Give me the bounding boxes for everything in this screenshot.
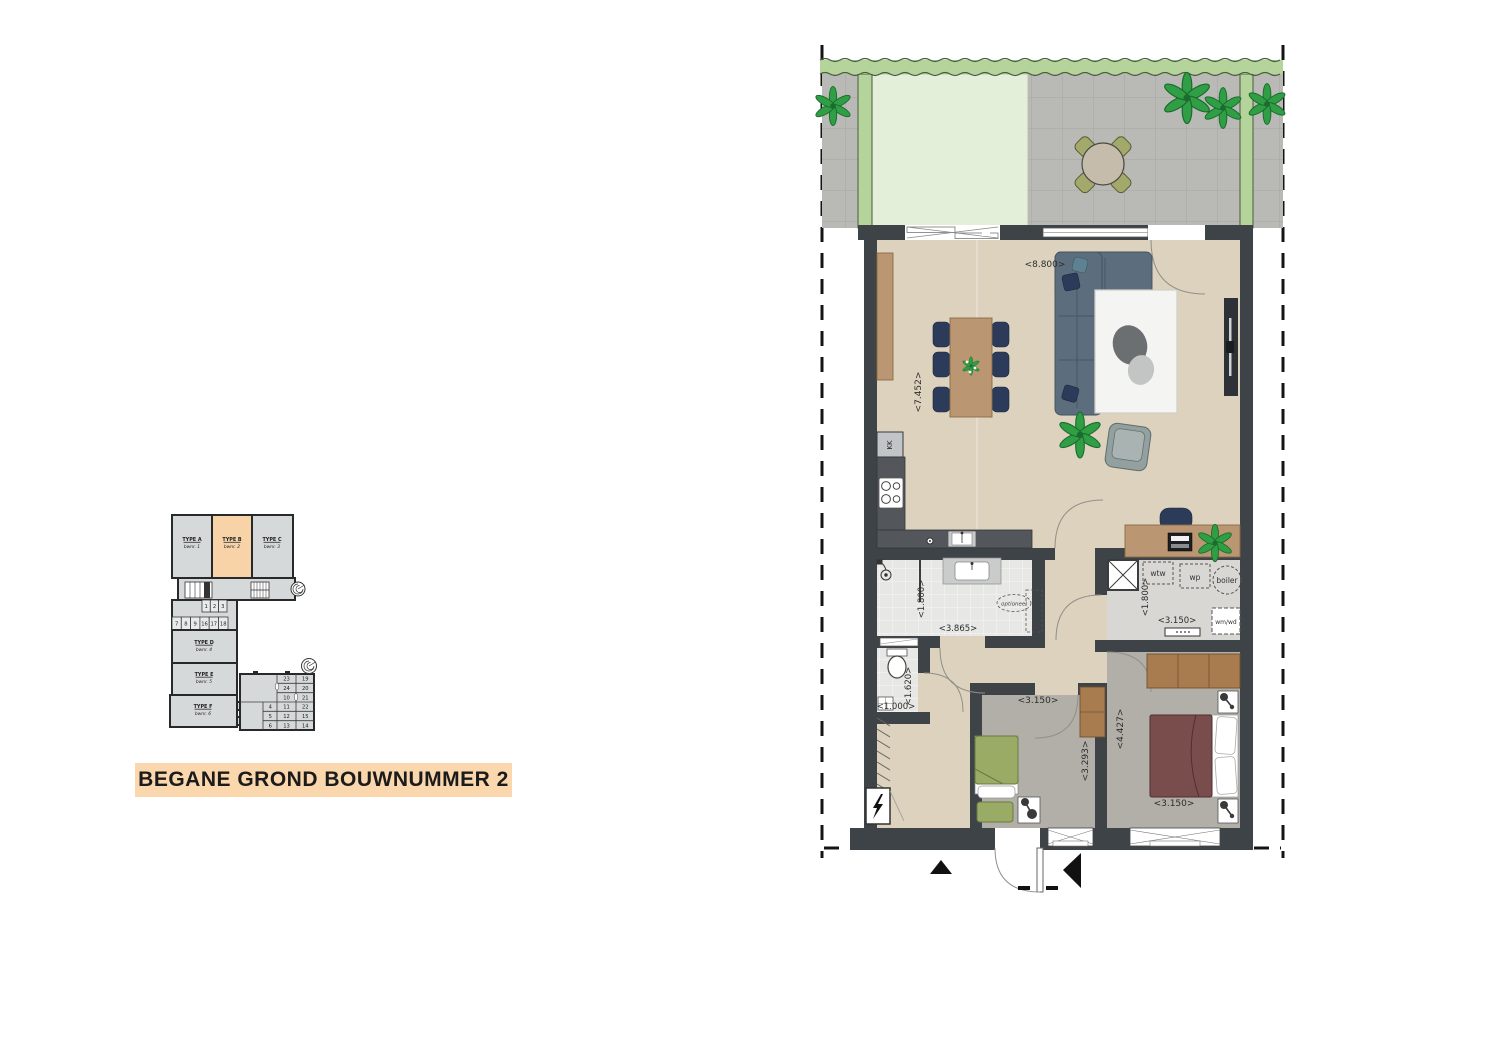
annex-number: 15 [302, 714, 309, 720]
annex-number: 12 [283, 714, 290, 720]
storage-cells-row2: 7 8 9 16 17 18 [172, 617, 228, 630]
wtw-label: wtw [1150, 569, 1165, 578]
vent-grille-icon [1165, 628, 1200, 636]
grass-area [872, 74, 1028, 228]
hedge-band-top [820, 60, 1283, 74]
nightstand [1218, 799, 1238, 823]
hedge-strip-left [858, 74, 872, 228]
annex-number: 20 [302, 686, 309, 692]
wall-tick [253, 671, 258, 674]
storage-number: 18 [220, 622, 227, 628]
dim-bedroom2-width: <3.150> [1154, 799, 1195, 809]
single-bed [975, 736, 1018, 822]
annex-number: 23 [283, 677, 290, 683]
door-handle [275, 683, 279, 690]
dim-bedroom2-depth: <4.427> [1116, 709, 1126, 750]
overview-key-plan: TYPE A bwnr. 1 TYPE B bwnr. 2 TYPE C bwn… [165, 505, 325, 740]
tv-icon [1224, 298, 1238, 396]
storage-number: 8 [184, 622, 187, 628]
washbasin-icon [943, 558, 1001, 584]
wp-label: wp [1190, 573, 1201, 582]
dim-toilet-width: <1.000> [877, 702, 916, 712]
annex-number: 5 [269, 714, 272, 720]
nightstand [1018, 797, 1040, 823]
nightstand [1218, 691, 1238, 713]
front-door-leaf [1037, 848, 1043, 892]
dim-bathroom-depth: <1.800> [917, 580, 927, 619]
bedroom2-window [1130, 828, 1220, 846]
dim-bathroom-width: <3.865> [939, 624, 978, 634]
terrace-door-opening [1148, 225, 1205, 240]
annex-number: 6 [269, 723, 272, 729]
storage-number: 16 [201, 622, 208, 628]
wall-tick [285, 671, 290, 674]
threshold-dash [1018, 886, 1030, 890]
storage-number: 2 [213, 604, 216, 610]
front-door-arc [995, 848, 1040, 892]
unit-bwnr-label: bwnr. 6 [195, 711, 211, 717]
annex-number: 14 [302, 723, 309, 729]
annex-number: 21 [302, 695, 309, 701]
storage-number: 9 [194, 622, 197, 628]
fridge-label: KK [886, 440, 894, 450]
front-door-opening [995, 828, 1040, 850]
floor-plan-page: KK [0, 0, 1485, 1050]
storage-number: 3 [221, 604, 224, 610]
storage-number: 1 [205, 604, 208, 610]
dim-living-depth: <7.452> [914, 372, 924, 413]
double-bed [1150, 715, 1238, 797]
unit-bwnr-label: bwnr. 4 [196, 647, 212, 653]
annex-number: 19 [302, 677, 309, 683]
storage-cells-row1: 1 2 3 [202, 600, 227, 612]
entrance-arrow-icon [1063, 853, 1081, 888]
wardrobe [1147, 654, 1240, 688]
wm-wd-label: wm/wd [1215, 619, 1237, 626]
bench-cushion [977, 802, 1013, 822]
pillow [1215, 716, 1238, 754]
dim-tech-width: <3.150> [1158, 616, 1197, 626]
terrace-tiles-left [822, 74, 858, 228]
shaft-icon [1108, 560, 1138, 590]
terrace-table [1082, 143, 1124, 185]
toilet-window [880, 638, 918, 646]
dim-tech-depth: <1.800> [1141, 578, 1151, 617]
unit-bwnr-label: bwnr. 2 [224, 544, 240, 550]
stairs-icon [251, 582, 269, 598]
dim-bedroom1-width: <3.150> [1018, 696, 1059, 706]
unit-bwnr-label: bwnr. 5 [196, 679, 212, 685]
sofa-pillow [1062, 273, 1081, 292]
pillow [1215, 756, 1238, 794]
cooktop-icon [879, 478, 903, 508]
annex-number: 11 [283, 705, 290, 711]
unit-bwnr-label: bwnr. 3 [264, 544, 280, 550]
main-floor-plan: KK [815, 36, 1290, 911]
spiral-stair-icon [291, 582, 305, 596]
kitchen-sink-icon [948, 531, 976, 547]
plan-title: BEGANE GROND BOUWNUMMER 2 [135, 763, 512, 797]
terrace [815, 59, 1287, 229]
bedroom1-window [1048, 828, 1093, 846]
storage-number: 17 [210, 622, 217, 628]
optional-label: optioneel [1001, 602, 1027, 608]
column-marker [982, 230, 990, 236]
tall-cabinet [877, 253, 893, 380]
threshold-dash [1046, 886, 1058, 890]
annex-number: 13 [283, 723, 290, 729]
unit-bwnr-label: bwnr. 1 [184, 544, 200, 550]
dim-living-width: <8.800> [1025, 260, 1066, 270]
overview-unit-e [172, 663, 237, 695]
annex-number: 24 [283, 686, 290, 692]
boiler-label: boiler [1216, 576, 1238, 585]
stairs-icon [185, 582, 212, 598]
spiral-stair-icon [302, 659, 317, 674]
dim-bedroom1-depth: <3.293> [1081, 741, 1091, 782]
rug [1095, 290, 1177, 413]
overview-unit-d [172, 630, 237, 663]
overview-annex: 4 5 6 23 24 10 11 12 13 19 20 21 22 15 1… [240, 671, 314, 730]
door-handle [294, 694, 298, 701]
dim-toilet-depth: <1.620> [904, 667, 914, 706]
storage-number: 7 [175, 622, 178, 628]
armchair [1104, 422, 1152, 471]
entrance-marker-icon [930, 860, 952, 874]
pillow [978, 786, 1015, 798]
overview-unit-f [170, 695, 237, 727]
annex-number: 22 [302, 705, 309, 711]
sofa-pillow [1072, 257, 1089, 274]
laptop-icon [1168, 533, 1192, 551]
annex-number: 10 [283, 695, 290, 701]
